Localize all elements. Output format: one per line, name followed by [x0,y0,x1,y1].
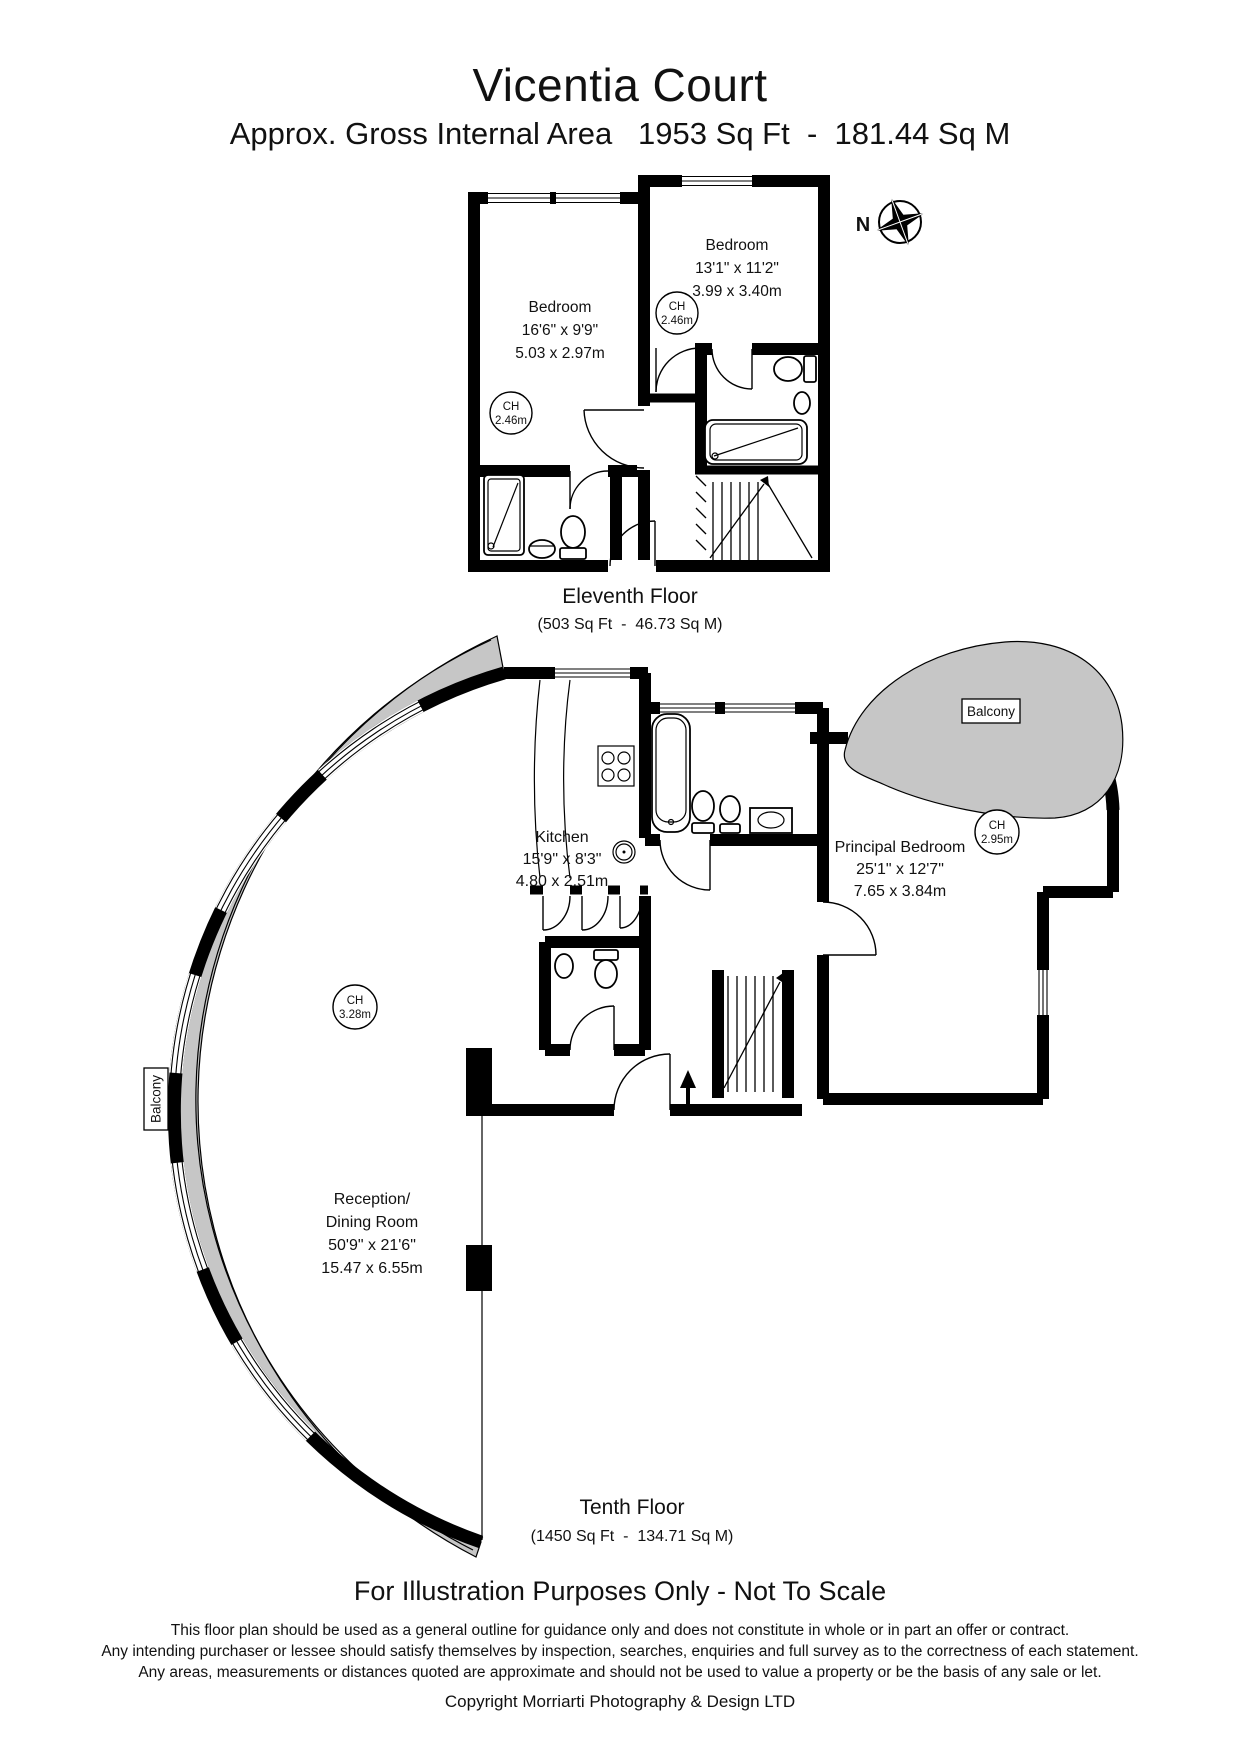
svg-text:4.80 x 2.51m: 4.80 x 2.51m [516,873,609,890]
bidet-fixture [720,796,740,833]
svg-text:50'9" x 21'6": 50'9" x 21'6" [328,1237,416,1254]
svg-text:Balcony: Balcony [149,1075,164,1123]
copyright: Copyright Morriarti Photography & Design… [0,1692,1240,1712]
toilet-fixture [692,791,714,833]
svg-text:15.47 x 6.55m: 15.47 x 6.55m [321,1260,422,1277]
svg-text:3.28m: 3.28m [339,1009,371,1021]
eleventh-floor-plan: Bedroom 16'6" x 9'9" 5.03 x 2.97m Bedroo… [460,170,840,582]
tenth-floor-area: (1450 Sq Ft - 134.71 Sq M) [442,1528,822,1546]
ensuite-basin-fixture [794,392,810,414]
page-title: Vicentia Court [0,58,1240,112]
svg-text:Dining Room: Dining Room [326,1214,418,1231]
balcony-left [174,636,504,1557]
bedroom-left-label: Bedroom 16'6" x 9'9" 5.03 x 2.97m [515,299,605,362]
balcony-label: Balcony [967,704,1015,719]
svg-text:CH: CH [347,995,364,1007]
stairs [724,973,785,1092]
svg-text:2.46m: 2.46m [661,315,693,327]
kitchen-sink-fixture [613,841,635,863]
svg-text:2.46m: 2.46m [495,415,527,427]
shower-fixture [484,475,524,555]
svg-text:7.65 x 3.84m: 7.65 x 3.84m [854,883,947,900]
svg-text:Bedroom: Bedroom [529,299,592,316]
eleventh-walls [474,181,824,566]
bathtub-fixture [652,714,690,832]
svg-text:Principal Bedroom: Principal Bedroom [835,839,966,856]
basin-fixture [529,540,555,558]
stove-fixture [598,746,634,786]
bathtub-fixture [705,420,807,464]
wc-toilet-fixture [594,950,618,988]
disclaimer-line: Any areas, measurements or distances quo… [0,1662,1240,1683]
kitchen-label: Kitchen 15'9" x 8'3" 4.80 x 2.51m [516,829,609,890]
disclaimer: This floor plan should be used as a gene… [0,1620,1240,1683]
svg-text:CH: CH [669,301,686,313]
stairs [696,476,812,560]
svg-text:15'9" x 8'3": 15'9" x 8'3" [523,851,602,868]
bedroom-right-label: Bedroom 13'1" x 11'2" 3.99 x 3.40m [692,237,782,300]
svg-text:Kitchen: Kitchen [535,829,588,846]
disclaimer-line: This floor plan should be used as a gene… [0,1620,1240,1641]
svg-text:25'1" x 12'7": 25'1" x 12'7" [856,861,944,878]
ceiling-height-badge: CH 2.46m [656,292,698,334]
svg-text:CH: CH [989,820,1006,832]
ensuite-toilet-fixture [774,356,816,382]
ceiling-height-badge: CH 3.28m [333,985,377,1029]
page-subtitle: Approx. Gross Internal Area 1953 Sq Ft -… [0,116,1240,152]
illustration-notice: For Illustration Purposes Only - Not To … [0,1576,1240,1607]
tenth-floor-title: Tenth Floor [442,1496,822,1520]
kitchen-counter [534,680,570,878]
floorplan-page: Vicentia Court Approx. Gross Internal Ar… [0,0,1240,1753]
svg-text:CH: CH [503,401,520,413]
svg-text:Reception/: Reception/ [334,1191,411,1208]
compass-icon: N [845,190,940,260]
svg-text:16'6" x 9'9": 16'6" x 9'9" [522,322,598,339]
ceiling-height-badge: CH 2.95m [975,810,1019,854]
eleventh-floor-title: Eleventh Floor [440,585,820,609]
principal-bedroom-label: Principal Bedroom 25'1" x 12'7" 7.65 x 3… [835,839,966,900]
wc-basin-fixture [555,954,573,978]
eleventh-windows [488,174,752,205]
reception-label: Reception/ Dining Room 50'9" x 21'6" 15.… [321,1191,422,1277]
bathroom-basin-fixture [750,808,792,833]
svg-text:5.03 x 2.97m: 5.03 x 2.97m [515,345,605,362]
toilet-fixture [560,516,586,559]
balcony-right: Balcony [844,642,1123,819]
compass-north-label: N [856,214,870,236]
disclaimer-line: Any intending purchaser or lessee should… [0,1641,1240,1662]
svg-text:13'1" x 11'2": 13'1" x 11'2" [695,260,779,277]
curved-wall [170,669,505,1546]
ceiling-height-badge: CH 2.46m [490,392,532,434]
svg-text:Bedroom: Bedroom [706,237,769,254]
balcony-left-label: Balcony [144,1068,168,1130]
svg-text:3.99 x 3.40m: 3.99 x 3.40m [692,283,782,300]
svg-text:2.95m: 2.95m [981,834,1013,846]
tenth-floor-plan: Balcony Balcony Kitchen 15'9" x 8'3" 4.8… [100,610,1130,1605]
